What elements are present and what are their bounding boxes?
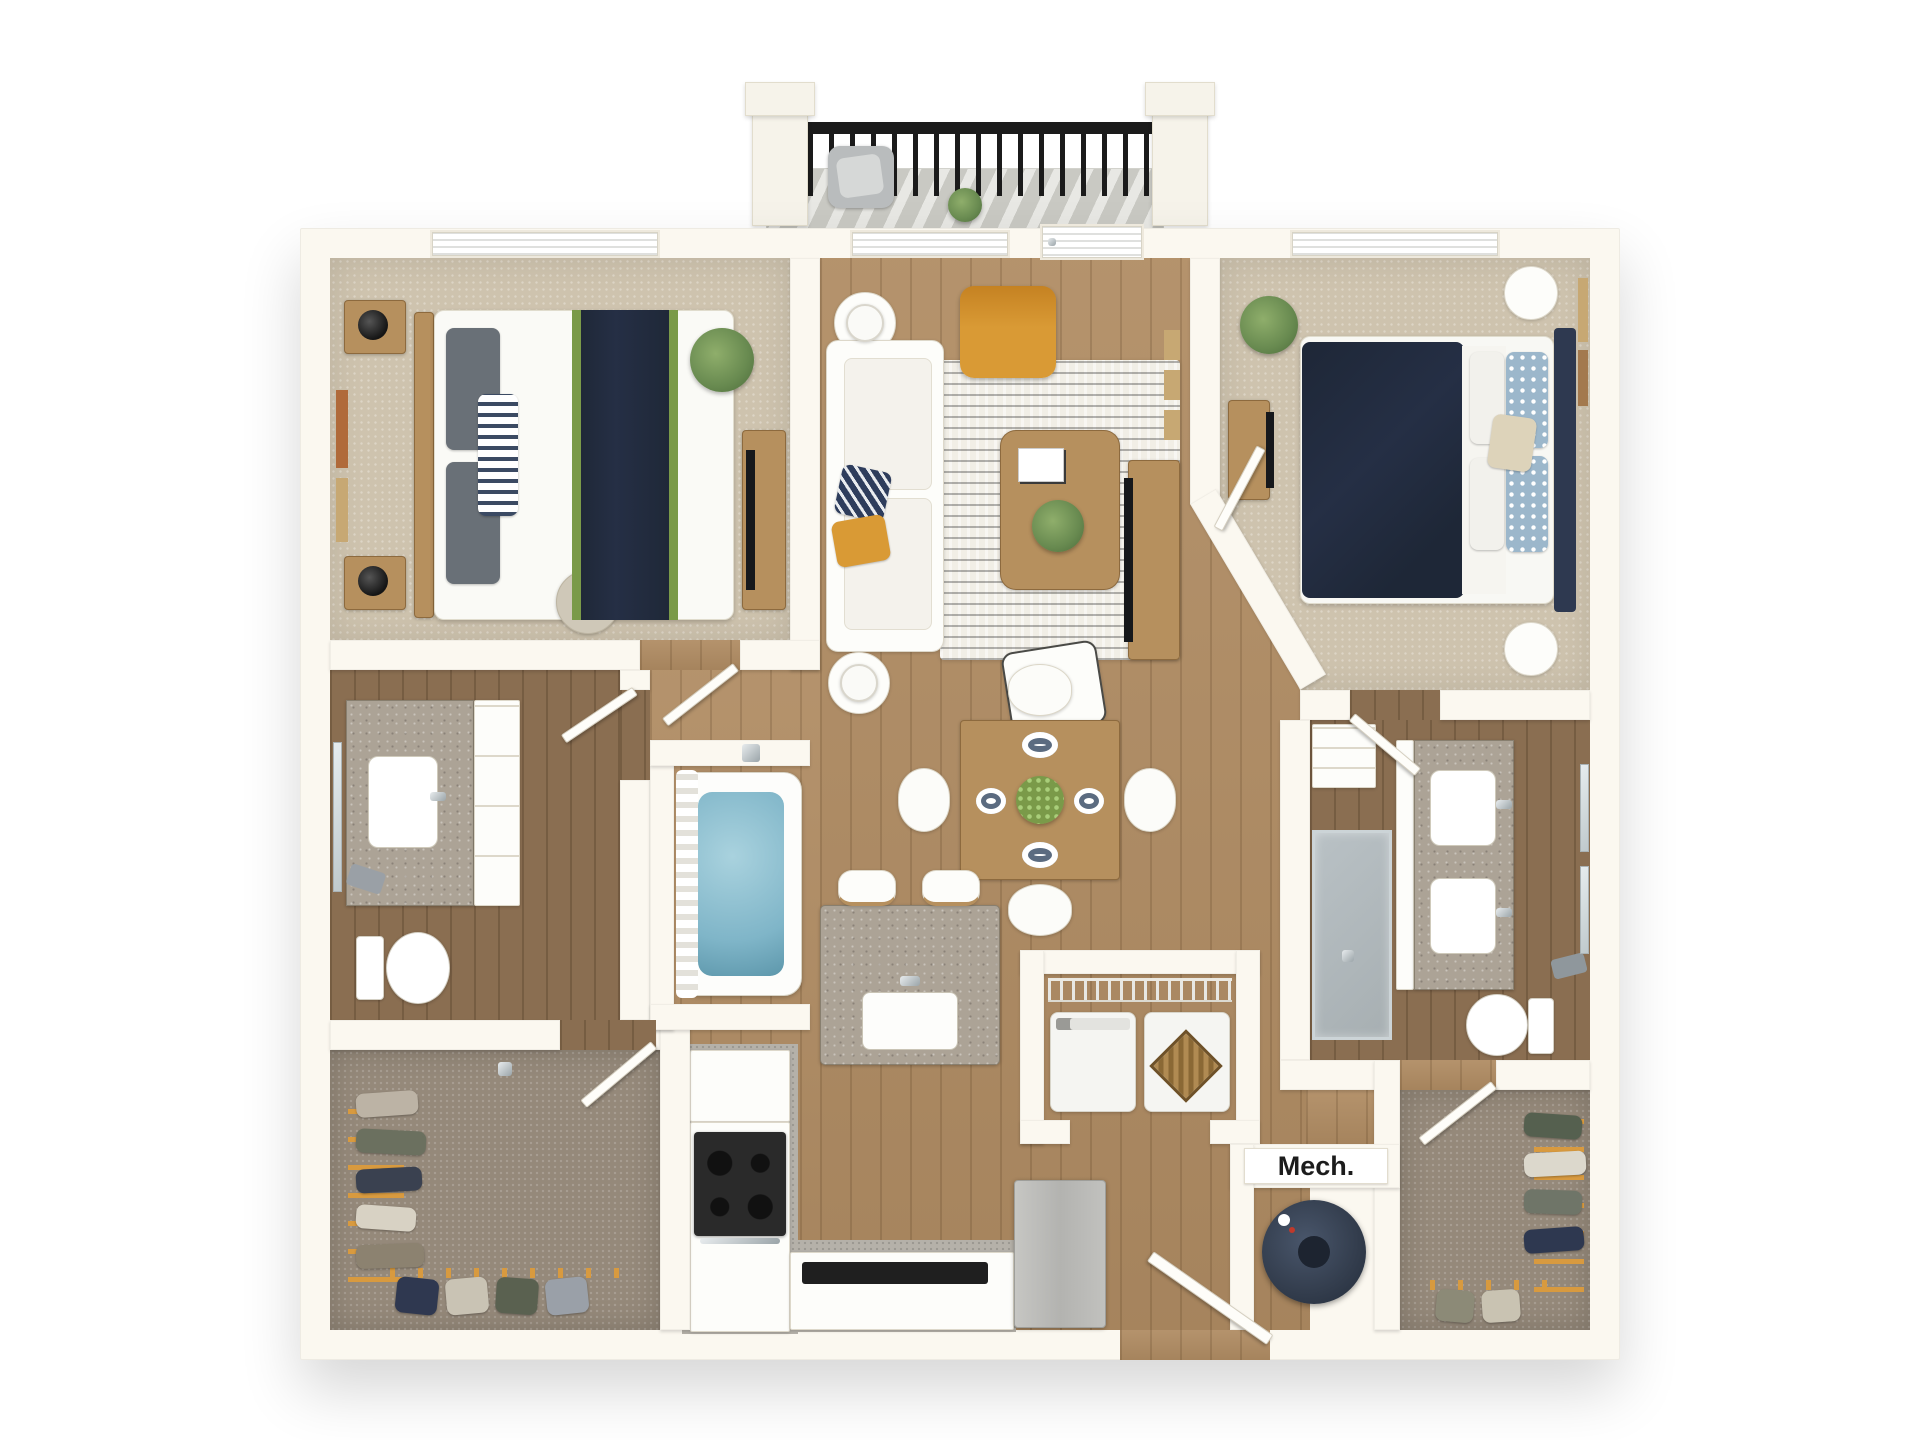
wall-bedroom1-bottom-b xyxy=(740,640,820,670)
wall-closet1-right xyxy=(660,1020,690,1330)
doorway-closet1 xyxy=(560,1020,656,1050)
living-tv xyxy=(1124,478,1133,642)
dining-chair-west xyxy=(898,768,950,832)
bedroom2-nightstand-top xyxy=(1504,266,1558,320)
balcony-chair-cushion xyxy=(835,153,884,199)
wall-bathroom2-left xyxy=(1280,720,1310,1060)
bedroom1-pillow-striped xyxy=(478,394,518,516)
closet1-clothes-4 xyxy=(355,1204,417,1232)
bedroom1-tv xyxy=(746,450,755,590)
living-armchair-mustard xyxy=(960,286,1056,378)
bedroom2-art-frame-2 xyxy=(1578,350,1588,406)
wall-tub-bottom xyxy=(650,1004,810,1030)
wall-living-bedroom2 xyxy=(1190,258,1220,504)
wall-bathroom1-closet1-a xyxy=(330,1020,560,1050)
bedroom2-plant xyxy=(1240,296,1298,354)
laundry-wire-shelf xyxy=(1048,978,1232,1002)
dining-place-setting-4 xyxy=(1074,788,1104,814)
bathroom2-faucet-2 xyxy=(1496,908,1512,917)
bathroom1-faucet xyxy=(430,792,446,801)
living-pillow-mustard xyxy=(830,514,891,569)
wall-laundry-top xyxy=(1020,950,1260,974)
kitchen-upper-cabinets xyxy=(690,1050,790,1122)
living-media-console xyxy=(1128,460,1180,660)
wall-bathroom1-right-b xyxy=(620,780,650,1020)
floor-plan-scene: Mech. xyxy=(0,0,1920,1440)
bedroom2-nightstand-bottom xyxy=(1504,622,1558,676)
balcony-railing-bar xyxy=(804,122,1158,134)
wall-laundry-bottom-b xyxy=(1210,1120,1260,1144)
mech-heater-valve xyxy=(1278,1214,1290,1226)
closet1-clothes-5 xyxy=(356,1243,425,1269)
dining-place-setting-1 xyxy=(1022,732,1058,758)
closet1-ceiling-light xyxy=(498,1062,512,1076)
bathroom2-faucet-1 xyxy=(1496,800,1512,809)
living-table-plant xyxy=(1032,500,1084,552)
bedroom1-bed-headboard xyxy=(414,312,434,618)
wall-bathroom1-right-a xyxy=(620,670,650,690)
dining-place-setting-3 xyxy=(976,788,1006,814)
bathroom2-vanity-cabinet xyxy=(1396,740,1414,990)
tub-water xyxy=(698,792,784,976)
bathroom2-sink-2 xyxy=(1430,878,1496,954)
bathroom1-cabinet xyxy=(474,700,520,906)
kitchen-stove xyxy=(694,1132,786,1236)
living-window xyxy=(850,230,1010,258)
living-coffee-table-book xyxy=(1018,448,1064,482)
doorway-bathroom2 xyxy=(1350,690,1440,720)
closet2-clothes-6 xyxy=(1481,1289,1521,1324)
dining-place-setting-2 xyxy=(1022,842,1058,868)
closet1-clothes-6 xyxy=(394,1276,440,1316)
balcony-plant xyxy=(948,188,982,222)
closet2-clothes-1 xyxy=(1523,1112,1583,1140)
bathroom2-shower xyxy=(1312,830,1392,1040)
doorway-entry xyxy=(1120,1330,1270,1360)
bedroom2-window xyxy=(1290,230,1500,258)
wall-bedroom1-right xyxy=(790,258,820,670)
bedroom2-pillow-cream xyxy=(1486,413,1537,473)
mech-room-label: Mech. xyxy=(1244,1148,1388,1184)
bedroom1-duvet-navy-runner xyxy=(581,310,669,620)
laundry-washer-controls xyxy=(1056,1018,1130,1030)
bedroom1-lamp-bottom xyxy=(358,566,388,596)
closet1-clothes-2 xyxy=(355,1128,426,1156)
bedroom2-headboard xyxy=(1554,328,1576,612)
bathroom2-shower-drain xyxy=(1342,950,1354,962)
kitchen-bar-stool-2 xyxy=(922,870,980,906)
closet2-clothes-3 xyxy=(1524,1189,1583,1215)
bedroom1-window xyxy=(430,230,660,258)
kitchen-black-counter xyxy=(802,1262,988,1284)
bedroom1-art-frame-2 xyxy=(336,478,348,542)
closet2-clothes-5 xyxy=(1435,1288,1476,1323)
kitchen-stove-handle xyxy=(700,1238,780,1244)
bedroom1-lamp-top xyxy=(358,310,388,340)
tub-shower-fixture xyxy=(742,744,760,762)
kitchen-refrigerator xyxy=(1014,1180,1106,1328)
bedroom2-pillow-white-2 xyxy=(1470,458,1504,550)
kitchen-island-faucet xyxy=(900,976,920,986)
dining-chair-south xyxy=(1008,884,1072,936)
bathroom1-toilet-tank xyxy=(356,936,384,1000)
closet2-clothes-2 xyxy=(1523,1150,1586,1177)
mech-room-label-text: Mech. xyxy=(1278,1151,1355,1182)
bedroom2-art-frame-1 xyxy=(1578,278,1588,342)
bathroom2-toilet-bowl xyxy=(1466,994,1528,1056)
living-pillow-navy xyxy=(833,463,892,522)
closet1-clothes-7 xyxy=(445,1276,490,1316)
bedroom1-art-frame-1 xyxy=(336,390,348,468)
bathroom1-sink xyxy=(368,756,438,848)
wall-laundry-right xyxy=(1236,950,1260,1144)
bathroom2-mirror-1 xyxy=(1580,764,1589,852)
bedroom2-tv xyxy=(1266,412,1274,488)
closet1-clothes-8 xyxy=(495,1277,539,1316)
bathroom2-toilet-tank xyxy=(1528,998,1554,1054)
closet1-clothes-9 xyxy=(544,1276,590,1316)
balcony-door-handle xyxy=(1048,238,1056,246)
wall-tub-top xyxy=(650,740,810,766)
doorway-bedroom1 xyxy=(640,640,740,670)
bathroom1-mirror xyxy=(333,742,342,892)
dining-chair-east xyxy=(1124,768,1176,832)
wall-laundry-bottom-a xyxy=(1020,1120,1070,1144)
closet2-clothes-4 xyxy=(1523,1226,1585,1254)
bathroom1-toilet-bowl xyxy=(386,932,450,1004)
wall-laundry-left xyxy=(1020,950,1044,1144)
tub-shower-curtain xyxy=(676,770,698,998)
wall-closet2-left xyxy=(1374,1060,1400,1330)
bathroom2-mirror-2 xyxy=(1580,866,1589,954)
bedroom1-palm-plant xyxy=(690,328,754,392)
wall-bedroom1-bottom-a xyxy=(330,640,640,670)
bedroom1-throw-green-edge-2 xyxy=(669,310,678,620)
closet1-clothes-1 xyxy=(355,1090,419,1118)
bedroom1-throw-green-edge-1 xyxy=(572,310,581,620)
kitchen-bar-stool-1 xyxy=(838,870,896,906)
wall-bedroom2-bottom-a xyxy=(1300,690,1350,720)
hall-to-closet2-floor xyxy=(1306,1090,1376,1144)
mech-heater-cap xyxy=(1298,1236,1330,1268)
closet2-hanger-rail-bottom xyxy=(1430,1280,1570,1290)
living-lamp-bottom xyxy=(840,664,878,702)
bedroom2-duvet-navy xyxy=(1302,342,1464,598)
kitchen-island-sink xyxy=(862,992,958,1050)
balcony-post-cap-left xyxy=(745,82,815,116)
wall-tub-left xyxy=(650,740,674,1030)
dining-chair-north xyxy=(1008,664,1072,716)
living-lamp-top xyxy=(846,304,884,342)
wall-bedroom2-bottom-b xyxy=(1440,690,1590,720)
balcony-post-cap-right xyxy=(1145,82,1215,116)
dining-centerpiece xyxy=(1016,776,1064,824)
wall-bathroom2-bottom-b xyxy=(1496,1060,1590,1090)
bathroom2-sink-1 xyxy=(1430,770,1496,846)
closet1-clothes-3 xyxy=(355,1166,422,1193)
living-gallery-frames xyxy=(1164,320,1180,440)
doorway-closet2 xyxy=(1400,1060,1496,1090)
